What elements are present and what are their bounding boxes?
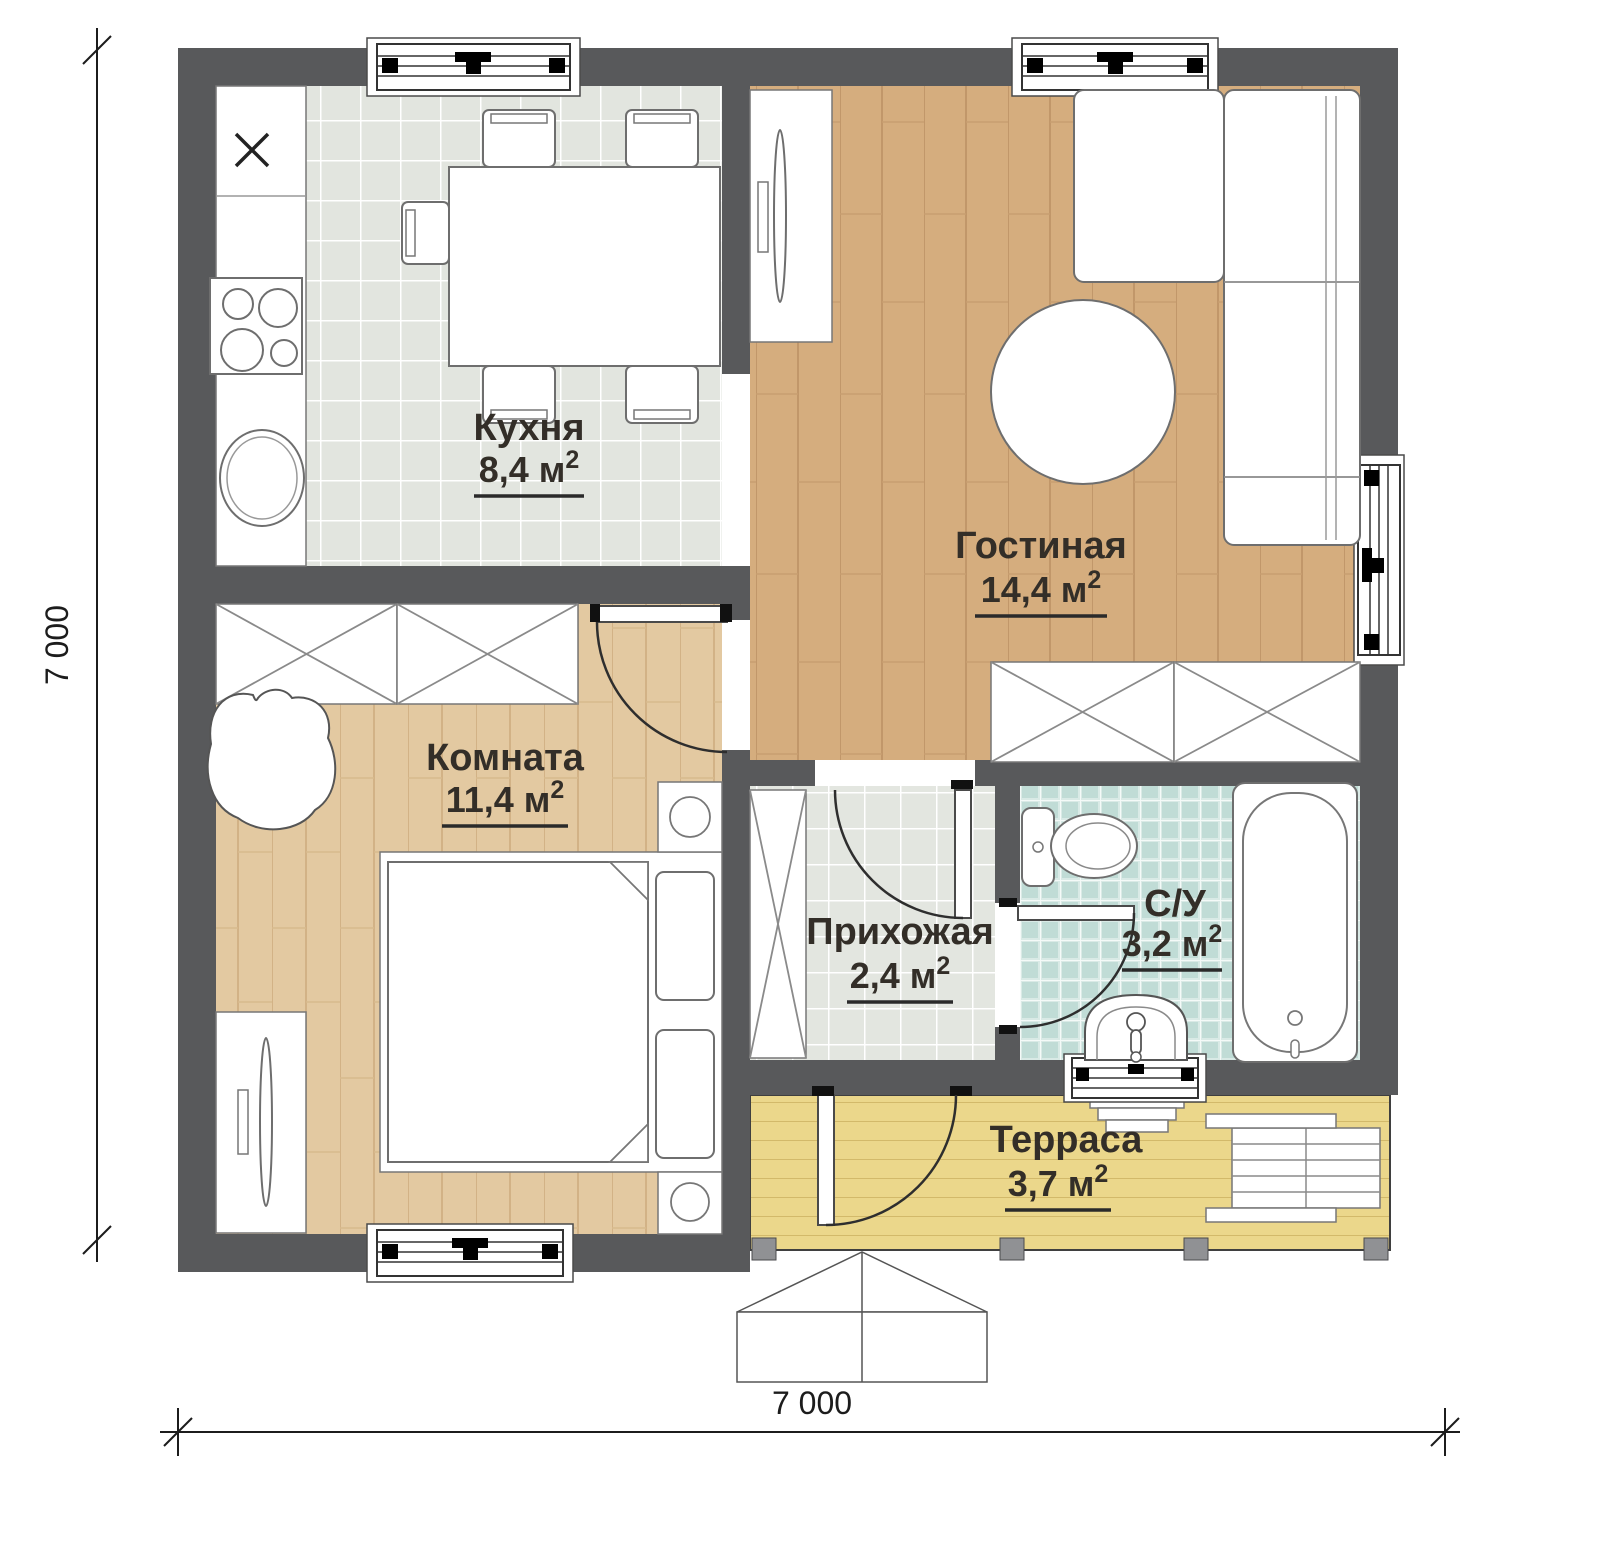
room-area: 8,4 м2 xyxy=(479,446,580,490)
hallway-wardrobe xyxy=(750,790,806,1058)
nightstand-top xyxy=(658,782,722,852)
room-name: Кухня xyxy=(473,407,584,449)
nightstand-bottom xyxy=(658,1172,722,1234)
room-area: 14,4 м2 xyxy=(981,566,1102,610)
terrace-post xyxy=(1184,1238,1208,1260)
tv-stand-living xyxy=(750,90,832,342)
dimension-width-label: 7 000 xyxy=(772,1385,852,1421)
kitchen-window xyxy=(367,38,580,96)
tv-stand-bedroom xyxy=(216,1012,306,1233)
wall-hallway-top-a xyxy=(750,760,815,786)
round-table xyxy=(991,300,1175,484)
pillow xyxy=(656,872,714,1000)
washbasin xyxy=(1085,995,1187,1062)
living-wardrobe xyxy=(991,662,1360,762)
room-name: Прихожая xyxy=(806,911,994,953)
floor-plan-page: Кухня 8,4 м2 Гостиная 14,4 м2 Комната 11… xyxy=(0,0,1600,1543)
bedroom-window xyxy=(367,1224,573,1282)
bedroom-wardrobe xyxy=(216,604,578,704)
dimension-height-label: 7 000 xyxy=(39,605,75,685)
tv-icon xyxy=(260,1038,272,1206)
wall-bedroom-hallway xyxy=(722,750,750,1234)
dimension-bottom: 7 000 xyxy=(160,1385,1460,1456)
wall-left xyxy=(178,48,216,1272)
living-window-right xyxy=(1354,455,1404,665)
kitchen-sink-bowl xyxy=(220,430,304,526)
dining-table xyxy=(449,167,720,366)
floor-plan-image: Кухня 8,4 м2 Гостиная 14,4 м2 Комната 11… xyxy=(0,0,1600,1543)
living-window-top xyxy=(1012,38,1218,96)
terrace-post xyxy=(752,1238,776,1260)
wall-kitchen-living xyxy=(722,48,750,374)
stove xyxy=(210,278,302,374)
armchair-blob xyxy=(208,690,335,830)
wall-hallway-bathroom-a xyxy=(995,786,1020,903)
hallway-furniture xyxy=(750,790,806,1058)
bed xyxy=(380,852,722,1172)
pillow xyxy=(656,1030,714,1158)
terrace-lounger xyxy=(1206,1114,1380,1222)
terrace-post xyxy=(1000,1238,1024,1260)
room-area: 3,7 м2 xyxy=(1008,1160,1109,1204)
room-name: Комната xyxy=(426,737,585,779)
room-area: 2,4 м2 xyxy=(850,952,951,996)
room-name: Терраса xyxy=(990,1119,1144,1161)
room-area: 3,2 м2 xyxy=(1122,920,1223,964)
porch-canopy xyxy=(737,1252,987,1382)
tv-icon xyxy=(774,130,786,302)
bathtub xyxy=(1233,783,1357,1062)
room-area: 11,4 м2 xyxy=(446,776,565,820)
room-name: Гостиная xyxy=(955,525,1127,567)
terrace-post xyxy=(1364,1238,1388,1260)
dimension-left: 7 000 xyxy=(39,28,111,1262)
wall-kitchen-bedroom xyxy=(178,566,750,604)
room-name: С/У xyxy=(1144,883,1206,925)
